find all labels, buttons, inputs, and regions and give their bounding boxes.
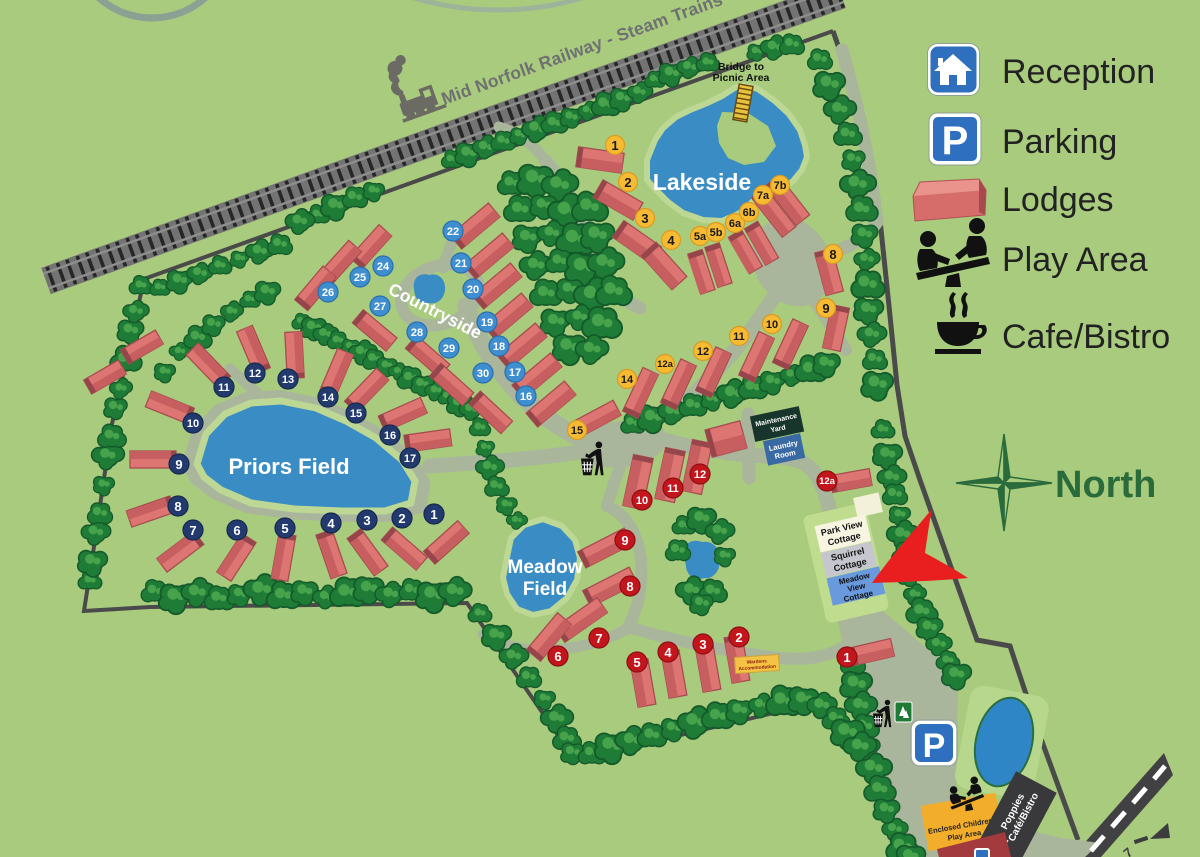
svg-text:16: 16: [384, 430, 396, 442]
svg-text:7b: 7b: [774, 180, 787, 192]
svg-text:Priors Field: Priors Field: [228, 454, 349, 479]
svg-text:26: 26: [322, 287, 334, 299]
svg-text:8: 8: [174, 499, 181, 514]
svg-text:12: 12: [697, 346, 709, 358]
svg-text:18: 18: [493, 341, 505, 353]
svg-text:24: 24: [377, 261, 390, 273]
svg-text:1: 1: [430, 507, 437, 522]
svg-text:28: 28: [411, 327, 423, 339]
svg-text:14: 14: [322, 392, 335, 404]
svg-text:9: 9: [621, 533, 628, 548]
svg-text:P: P: [942, 119, 969, 163]
svg-text:3: 3: [363, 513, 370, 528]
svg-text:10: 10: [636, 495, 648, 507]
svg-text:9: 9: [175, 457, 182, 472]
svg-text:15: 15: [350, 408, 362, 420]
svg-text:Picnic Area: Picnic Area: [713, 72, 770, 84]
svg-text:12a: 12a: [819, 476, 836, 487]
svg-text:5: 5: [633, 655, 640, 670]
svg-text:7: 7: [189, 523, 196, 538]
svg-text:8: 8: [626, 579, 633, 594]
svg-text:5a: 5a: [694, 231, 707, 243]
svg-text:15: 15: [571, 425, 583, 437]
svg-text:8: 8: [829, 247, 836, 262]
svg-text:6b: 6b: [743, 207, 756, 219]
svg-text:Field: Field: [523, 579, 567, 600]
svg-text:7: 7: [595, 631, 602, 646]
svg-text:5b: 5b: [710, 227, 723, 239]
svg-text:2: 2: [735, 630, 742, 645]
svg-text:7a: 7a: [757, 190, 770, 202]
svg-text:10: 10: [187, 418, 199, 430]
svg-text:6: 6: [554, 649, 561, 664]
svg-text:4: 4: [667, 233, 675, 248]
svg-text:13: 13: [282, 374, 294, 386]
svg-text:4: 4: [664, 645, 672, 660]
svg-text:12: 12: [694, 469, 706, 481]
svg-text:16: 16: [520, 391, 532, 403]
svg-text:11: 11: [733, 331, 745, 343]
svg-text:Cafe/Bistro: Cafe/Bistro: [1002, 318, 1170, 356]
svg-text:Lodges: Lodges: [1002, 181, 1114, 219]
svg-text:22: 22: [447, 226, 459, 238]
svg-text:5: 5: [281, 521, 288, 536]
svg-text:1: 1: [611, 138, 618, 153]
svg-text:Play Area: Play Area: [1002, 241, 1148, 279]
svg-text:Meadow: Meadow: [508, 557, 583, 578]
svg-text:P: P: [923, 727, 946, 765]
svg-text:10: 10: [766, 319, 778, 331]
svg-text:11: 11: [667, 483, 679, 495]
svg-text:3: 3: [641, 211, 648, 226]
svg-text:27: 27: [374, 301, 386, 313]
svg-text:Reception: Reception: [1002, 53, 1155, 91]
svg-text:11: 11: [218, 382, 230, 394]
svg-text:12a: 12a: [657, 359, 674, 370]
svg-text:3: 3: [699, 637, 706, 652]
svg-text:30: 30: [477, 368, 489, 380]
svg-text:Parking: Parking: [1002, 123, 1117, 161]
svg-text:21: 21: [455, 258, 467, 270]
svg-text:25: 25: [354, 272, 366, 284]
svg-text:14: 14: [621, 374, 634, 386]
svg-text:4: 4: [327, 516, 335, 531]
svg-text:17: 17: [509, 367, 521, 379]
svg-text:12: 12: [249, 368, 261, 380]
svg-text:2: 2: [398, 511, 405, 526]
svg-text:Lakeside: Lakeside: [653, 169, 751, 195]
svg-text:6a: 6a: [729, 218, 742, 230]
svg-text:29: 29: [443, 343, 455, 355]
svg-text:20: 20: [467, 284, 479, 296]
svg-text:19: 19: [481, 317, 493, 329]
svg-text:1: 1: [843, 650, 850, 665]
svg-text:9: 9: [822, 301, 829, 316]
svg-text:2: 2: [624, 175, 631, 190]
svg-text:6: 6: [233, 523, 240, 538]
svg-text:17: 17: [404, 453, 416, 465]
svg-text:North: North: [1055, 464, 1156, 506]
